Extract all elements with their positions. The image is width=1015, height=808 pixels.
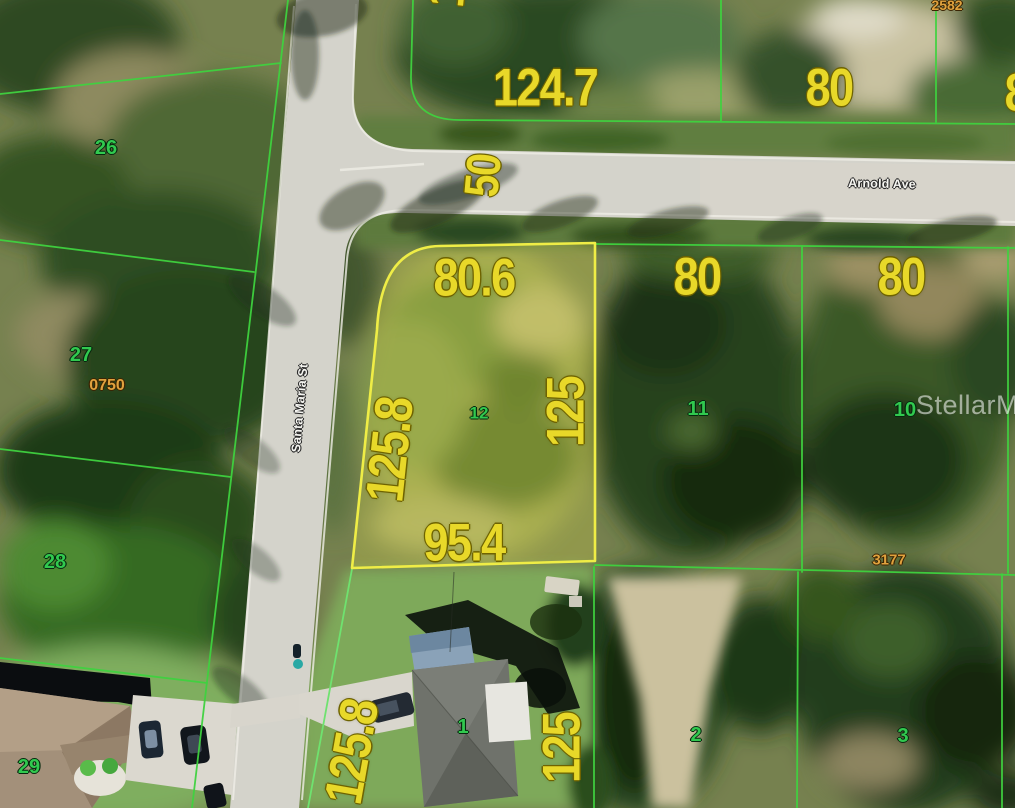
dim-label-subject-west: 125.8: [358, 395, 422, 504]
parcel-id-3177: 3177: [872, 553, 905, 568]
lot-number-29: 29: [18, 757, 40, 777]
lot-number-28: 28: [44, 552, 66, 572]
dim-label-lot11-front: 80: [674, 251, 721, 304]
dim-label-lot10-front: 80: [878, 251, 925, 304]
dim-label-north-corner-front: 124.7: [493, 62, 597, 115]
dim-label-lot1-east: 125: [536, 713, 589, 783]
dim-label-north-right-front: 80: [1005, 67, 1015, 120]
lot-number-11: 11: [687, 399, 708, 419]
dim-label-subject-rear: 95.4: [424, 517, 505, 570]
satellite-imagery: [0, 0, 1015, 808]
lot-number-3: 3: [897, 726, 908, 746]
dim-label-road-width: 50: [458, 153, 509, 199]
lot-number-2: 2: [690, 725, 701, 745]
lot-number-10: 10: [894, 400, 916, 420]
street-label-arnold-ave: Arnold Ave: [848, 177, 916, 191]
lot-number-1: 1: [457, 717, 468, 737]
dim-label-subject-front: 80.6: [434, 252, 515, 305]
parcel-id-0750: 0750: [89, 378, 125, 394]
lot-number-26: 26: [95, 138, 117, 158]
dim-label-subject-east: 125: [540, 377, 593, 447]
watermark: StellarMLS: [916, 392, 1015, 419]
lot-number-27: 27: [70, 345, 92, 365]
lot-number-12-subject: 12: [470, 405, 489, 422]
parcel-id-2582: 2582: [931, 0, 962, 12]
parcel-map[interactable]: 125 124.7 50 80 80 80.6 125.8 125 95.4 8…: [0, 0, 1015, 808]
dim-label-north-mid-front: 80: [806, 62, 853, 115]
